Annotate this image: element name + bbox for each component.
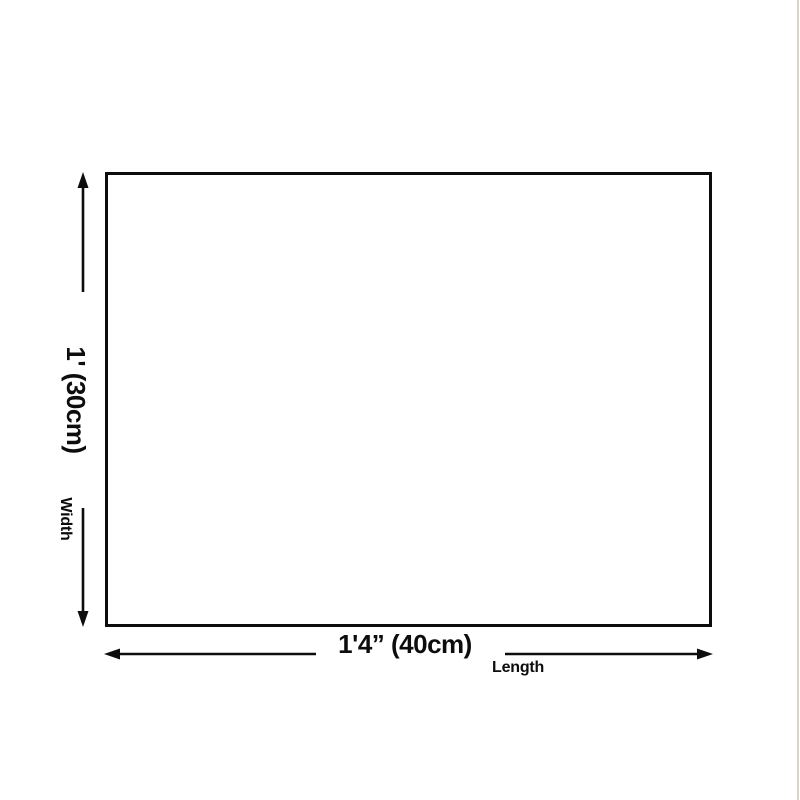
product-area-rectangle [105, 172, 712, 627]
width-axis-label: Width [57, 497, 73, 540]
length-arrow-right-head [697, 649, 713, 660]
size-diagram: 1' (30cm) Width 1'4” (40cm) Length [0, 0, 800, 800]
length-axis-label: Length [492, 660, 544, 676]
width-arrow-down-head [78, 611, 89, 627]
length-value-label: 1'4” (40cm) [338, 631, 472, 657]
right-edge-divider [797, 0, 799, 800]
width-arrow-up-head [78, 172, 89, 188]
width-value-label: 1' (30cm) [63, 346, 89, 453]
length-arrow-left-head [104, 649, 120, 660]
